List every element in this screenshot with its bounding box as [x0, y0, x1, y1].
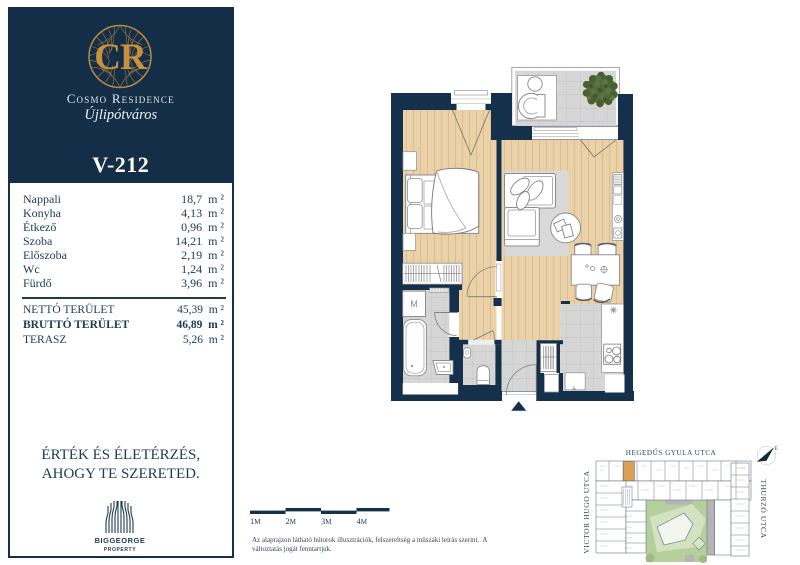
- svg-text:VICTOR HUGO UTCA: VICTOR HUGO UTCA: [582, 470, 591, 553]
- svg-text:CR: CR: [94, 37, 148, 78]
- svg-text:PROPERTY: PROPERTY: [104, 547, 136, 553]
- svg-text:THURZÓ UTCA: THURZÓ UTCA: [759, 479, 769, 538]
- svg-text:4M: 4M: [357, 516, 368, 526]
- svg-text:M: M: [410, 299, 418, 309]
- svg-text:1M: 1M: [250, 516, 261, 526]
- svg-text:2M: 2M: [286, 516, 297, 526]
- svg-text:3M: 3M: [321, 516, 332, 526]
- svg-text:BIGGEORGE: BIGGEORGE: [95, 536, 146, 545]
- svg-text:HEGEDŰS GYULA UTCA: HEGEDŰS GYULA UTCA: [626, 447, 717, 457]
- svg-text:É: É: [775, 446, 778, 452]
